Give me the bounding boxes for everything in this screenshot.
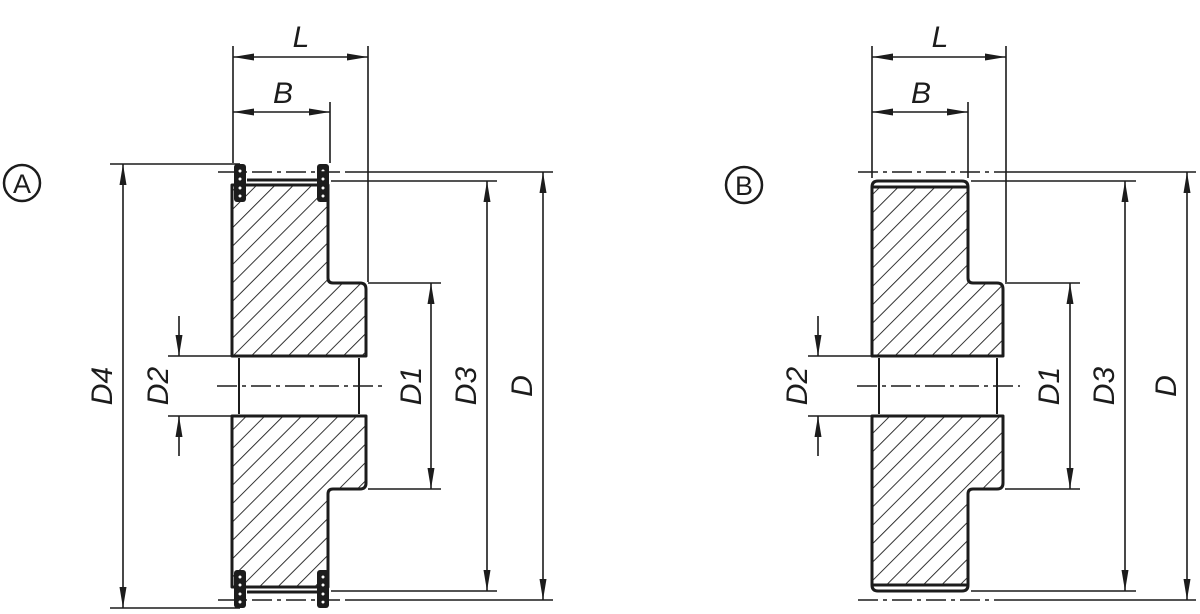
dim-label-d2: D2 [142,367,175,406]
dim-label-d: D [506,375,539,397]
dim-b: B [233,77,330,163]
view-b-badge-letter: B [735,171,753,201]
arrowhead-down [120,587,127,608]
flange-bottom-left [234,570,246,608]
arrowhead-left [872,54,893,61]
dim-label-d2: D2 [781,367,814,406]
arrowhead-up [120,164,127,185]
section-hatch-upper [872,187,1003,356]
arrowhead-right [347,54,368,61]
dim-label-d3: D3 [450,367,483,406]
dim-label-l: L [932,21,949,54]
arrowhead-down [428,468,435,489]
dim-d: D [1150,172,1191,600]
arrowhead-up [815,416,822,437]
arrowhead-down [484,570,491,591]
view-b-badge: B [726,167,762,203]
flange-top-right [317,164,329,202]
pulley-technical-drawing: A [0,0,1200,614]
view-a-badge: A [4,165,40,201]
section-hatch-lower [872,416,1003,585]
flange-bottom-right [317,570,329,608]
arrowhead-up [176,416,183,437]
dim-label-d1: D1 [395,367,428,405]
flange-top-left [234,164,246,202]
section-hatch-upper [232,185,366,356]
arrowhead-left [872,109,893,116]
arrowhead-up [1184,172,1191,193]
view-b: B L B [726,21,1196,600]
arrowhead-up [1067,283,1074,304]
arrowhead-left [233,109,254,116]
dim-d: D [506,172,547,600]
view-a: A [4,21,553,608]
arrowhead-up [540,172,547,193]
arrowhead-up [1122,181,1129,202]
arrowhead-right [947,109,968,116]
dim-label-b: B [911,77,931,110]
arrowhead-down [540,579,547,600]
arrowhead-down [1122,570,1129,591]
dim-d1: D1 [1005,283,1080,489]
arrowhead-right [309,109,330,116]
arrowhead-right [985,54,1006,61]
dim-b: B [872,77,968,178]
arrowhead-down [1184,579,1191,600]
dim-label-d4: D4 [86,367,119,405]
dim-label-d: D [1150,375,1183,397]
arrowhead-down [815,335,822,356]
section-hatch-lower [232,416,366,587]
arrowhead-down [176,335,183,356]
arrowhead-down [1067,468,1074,489]
dim-label-l: L [293,21,310,54]
technical-drawing-page: A [0,0,1200,614]
view-a-badge-letter: A [13,169,31,199]
arrowhead-up [428,283,435,304]
dim-label-b: B [273,77,293,110]
arrowhead-left [233,54,254,61]
dim-label-d1: D1 [1033,367,1066,405]
arrowhead-up [484,181,491,202]
dim-label-d3: D3 [1088,367,1121,406]
